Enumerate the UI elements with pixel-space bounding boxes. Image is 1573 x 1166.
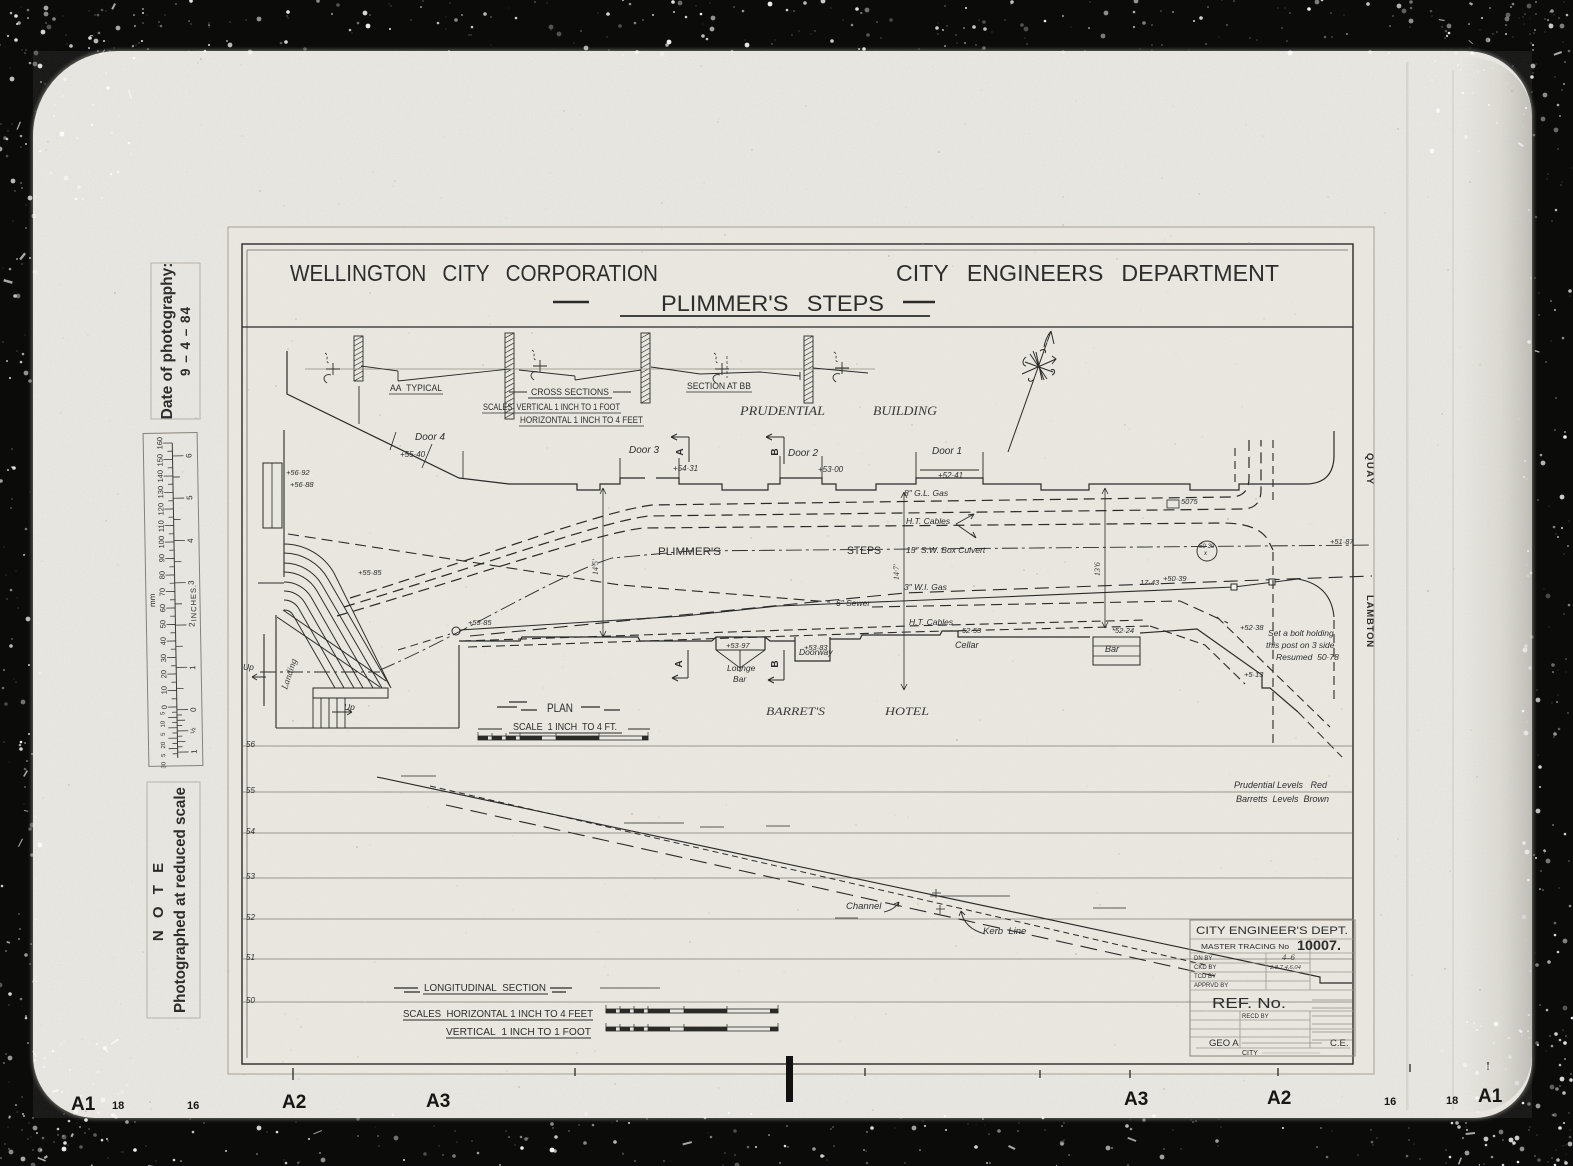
svg-text:WELLINGTON CITY CORPORATION: WELLINGTON CITY CORPORATION [290,260,658,286]
svg-text:5: 5 [160,711,166,715]
svg-text:80: 80 [157,571,166,579]
svg-text:10: 10 [160,686,169,694]
svg-text:SECTION AT BB: SECTION AT BB [687,381,751,391]
svg-text:CITY: CITY [1242,1050,1258,1057]
svg-text:QUAY: QUAY [1364,453,1375,486]
svg-text:6: 6 [184,453,193,458]
svg-text:160: 160 [155,437,164,450]
svg-text:0: 0 [189,707,198,712]
svg-text:20: 20 [161,741,167,748]
svg-text:70: 70 [158,588,167,596]
svg-text:Photographed at reduced scale: Photographed at reduced scale [172,787,189,1013]
svg-text:PLIMMER'S STEPS: PLIMMER'S STEPS [661,291,884,316]
svg-text:10007.: 10007. [1297,937,1341,953]
svg-text:100: 100 [157,536,166,549]
svg-text:CROSS SECTIONS: CROSS SECTIONS [531,387,609,398]
svg-text:14·5′: 14·5′ [591,559,600,575]
svg-text:120: 120 [156,503,165,516]
svg-text:HORIZONTAL 1 INCH TO 4 FEET: HORIZONTAL 1 INCH TO 4 FEET [520,415,643,426]
svg-text:GEO A: GEO A [1209,1038,1239,1049]
svg-text:110: 110 [157,520,166,532]
svg-text:LAMBTON: LAMBTON [1364,595,1375,648]
svg-text:VERTICAL 1 INCH TO 1 FOOT: VERTICAL 1 INCH TO 1 FOOT [446,1027,591,1038]
svg-text:1: 1 [188,665,197,670]
svg-text:TCD BY: TCD BY [1194,974,1216,980]
svg-text:150: 150 [155,454,164,467]
svg-text:50: 50 [158,620,167,628]
svg-text:2: 2 [187,622,196,627]
svg-text:INCHES.: INCHES. [189,584,199,622]
svg-text:B: B [770,448,781,455]
svg-text:13′6: 13′6 [1093,562,1102,576]
svg-text:STEPS: STEPS [847,545,881,557]
svg-text:10: 10 [161,720,167,727]
svg-text:MASTER TRACING No: MASTER TRACING No [1201,942,1289,951]
svg-text:CKD BY: CKD BY [1194,965,1216,971]
svg-text:30: 30 [159,654,168,662]
svg-text:N O T E: N O T E [150,859,167,941]
svg-text:A: A [674,660,685,667]
svg-text:130: 130 [156,486,165,499]
svg-text:0: 0 [160,705,169,709]
svg-text:½: ½ [189,728,197,734]
svg-text:LONGITUDINAL SECTION: LONGITUDINAL SECTION [424,982,546,994]
svg-text:APPRVD BY: APPRVD BY [1194,983,1228,989]
svg-text:60: 60 [158,604,167,612]
svg-text:4: 4 [186,538,195,543]
svg-text:Date of photography:: Date of photography: [159,263,176,420]
svg-text:40: 40 [159,637,168,645]
svg-text:BARRET'S: BARRET'S [766,704,825,718]
svg-text:5: 5 [185,495,194,500]
svg-text:5: 5 [161,732,167,736]
svg-text:PRUDENTIAL: PRUDENTIAL [739,403,825,418]
svg-text:CITY ENGINEER'S DEPT.: CITY ENGINEER'S DEPT. [1196,925,1348,937]
svg-text:A: A [675,448,686,455]
svg-text:1: 1 [190,749,199,754]
svg-text:BUILDING: BUILDING [873,403,938,418]
svg-text:SCALES VERTICAL 1 INCH TO 1 F: SCALES VERTICAL 1 INCH TO 1 FOOT [483,402,620,413]
svg-text:4–6: 4–6 [1282,952,1296,962]
svg-text:90: 90 [157,554,166,562]
svg-text:B: B [770,660,781,667]
svg-text:DN BY: DN BY [1194,956,1212,962]
svg-text:RECD BY: RECD BY [1242,1014,1269,1020]
svg-text:30: 30 [161,761,167,768]
svg-text:PLAN: PLAN [547,703,573,715]
svg-text:C.E.: C.E. [1330,1038,1348,1049]
svg-text:mm: mm [148,593,157,607]
svg-text:HOTEL: HOTEL [884,704,930,718]
svg-text:AA TYPICAL: AA TYPICAL [390,383,442,393]
svg-text:PLIMMER'S: PLIMMER'S [658,546,721,558]
svg-text:140: 140 [156,470,165,483]
svg-text:5: 5 [161,753,167,757]
svg-text:14·7′: 14·7′ [892,564,901,580]
svg-text:SCALES HORIZONTAL 1 INCH TO 4: SCALES HORIZONTAL 1 INCH TO 4 FEET [403,1009,593,1020]
svg-text:20: 20 [159,670,168,678]
svg-text:CITY ENGINEERS DEPARTMENT: CITY ENGINEERS DEPARTMENT [896,260,1279,286]
svg-text:REF. No.: REF. No. [1212,996,1286,1012]
svg-text:9 – 4 – 84: 9 – 4 – 84 [178,306,193,376]
svg-text:SCALE 1 INCH TO 4 FT.: SCALE 1 INCH TO 4 FT. [513,722,617,733]
svg-text:2.8.7 4.6.04: 2.8.7 4.6.04 [1270,964,1302,971]
